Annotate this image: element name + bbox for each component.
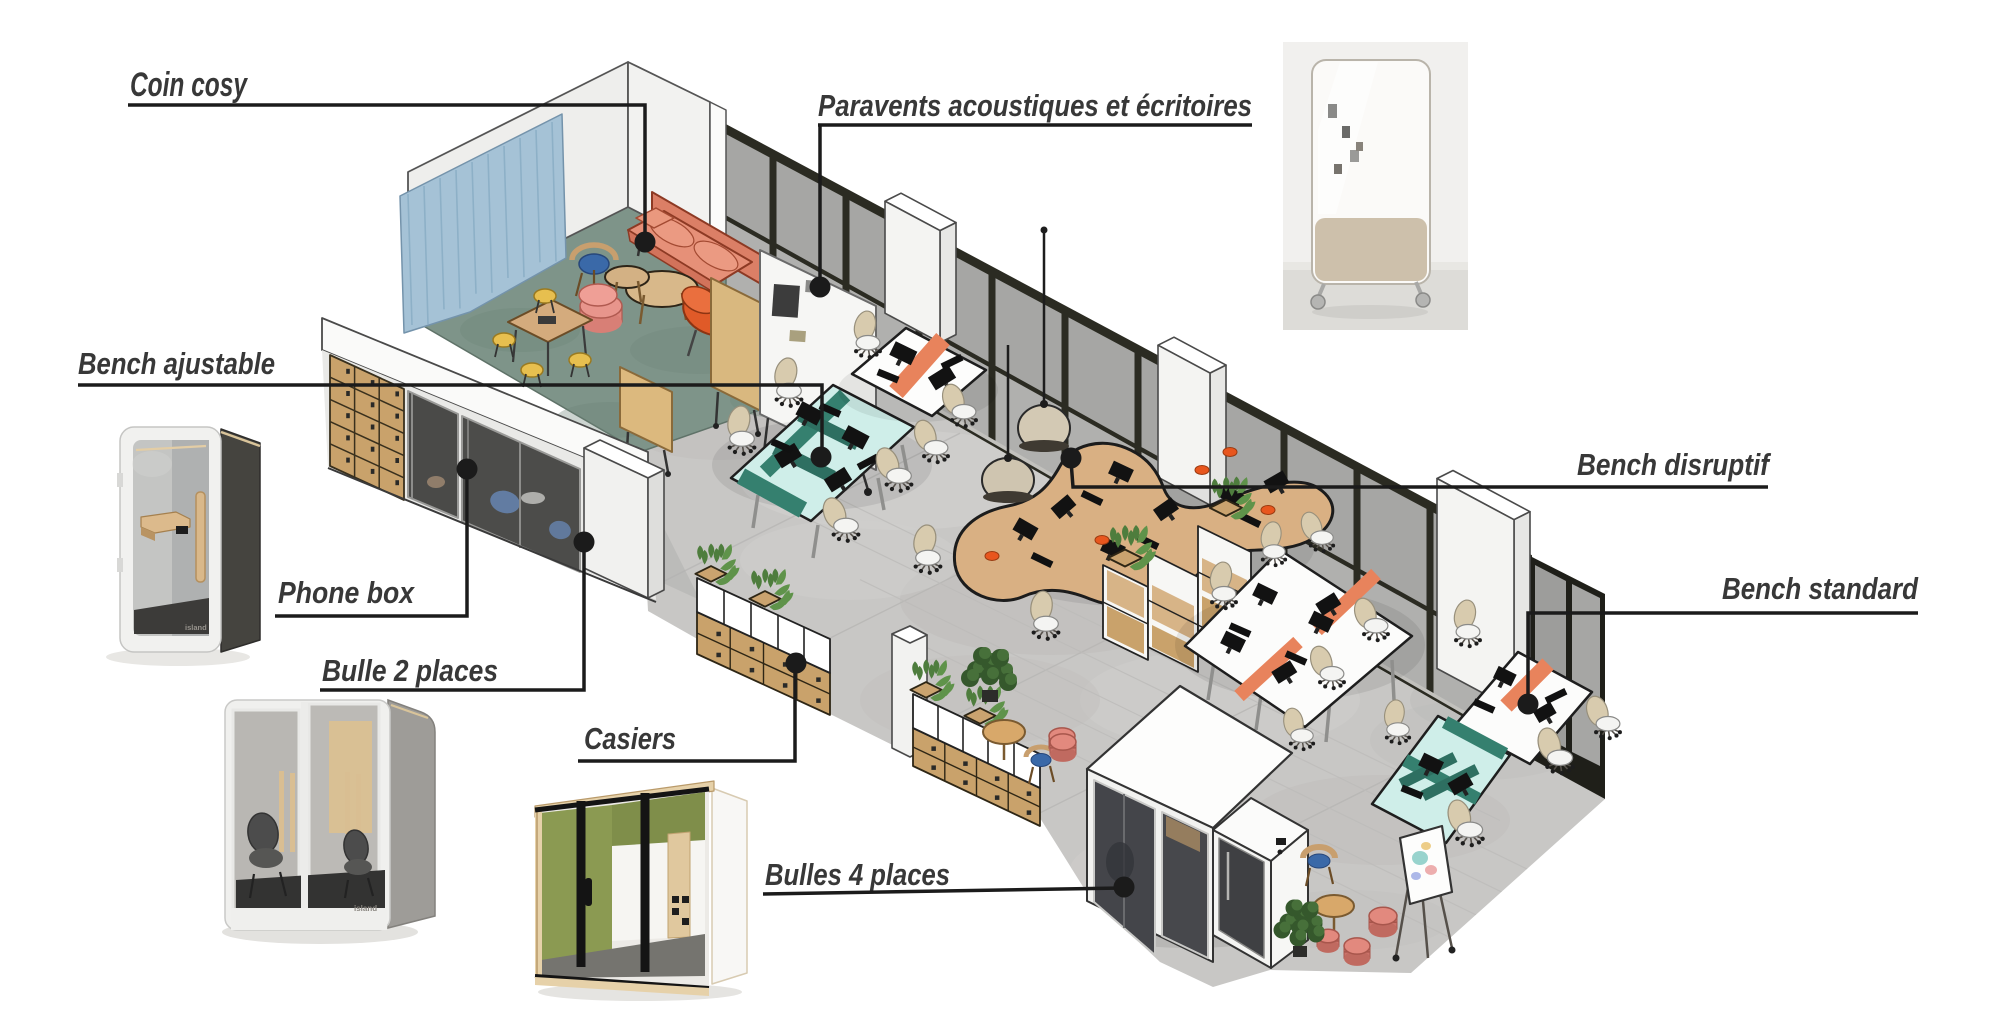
svg-text:Coin cosy: Coin cosy <box>130 66 249 104</box>
svg-text:island: island <box>185 623 207 632</box>
svg-text:Casiers: Casiers <box>584 721 676 756</box>
svg-text:Bulles 4 places: Bulles 4 places <box>765 857 950 892</box>
svg-text:Paravents acoustiques et écrit: Paravents acoustiques et écritoires <box>818 88 1252 123</box>
svg-text:Bench standard: Bench standard <box>1722 571 1919 606</box>
svg-text:Bench ajustable: Bench ajustable <box>78 346 275 381</box>
svg-text:Bulle 2 places: Bulle 2 places <box>322 653 498 688</box>
svg-text:Phone box: Phone box <box>278 575 416 610</box>
svg-text:island: island <box>354 904 377 913</box>
svg-text:Bench disruptif: Bench disruptif <box>1577 447 1771 482</box>
